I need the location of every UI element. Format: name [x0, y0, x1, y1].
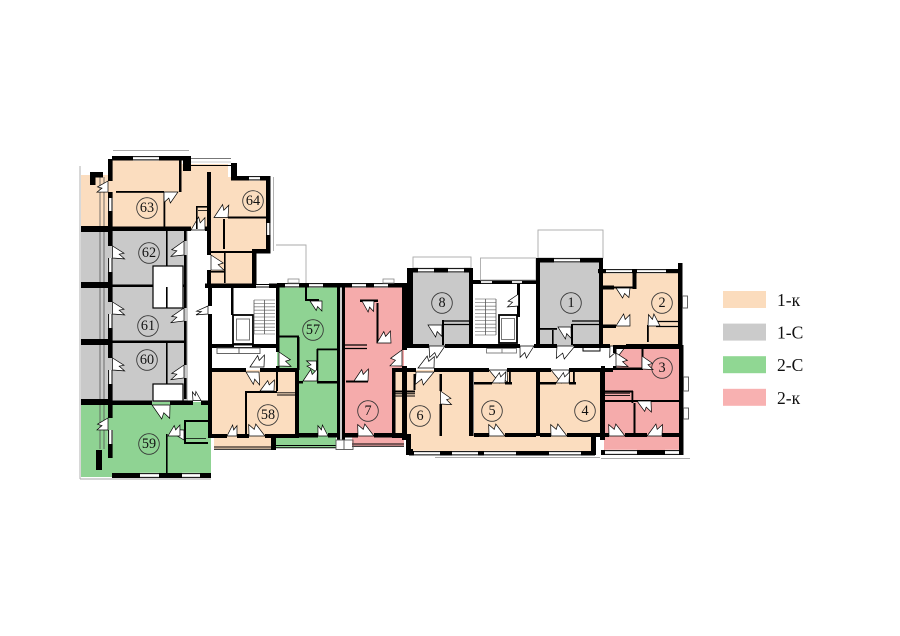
svg-text:2-к: 2-к [777, 388, 801, 408]
svg-text:60: 60 [140, 352, 154, 368]
svg-text:1: 1 [567, 295, 574, 311]
svg-text:57: 57 [306, 322, 320, 338]
svg-text:3: 3 [658, 360, 665, 376]
svg-text:61: 61 [141, 318, 155, 334]
svg-text:1-С: 1-С [777, 323, 803, 343]
svg-text:2-С: 2-С [777, 355, 803, 375]
svg-text:4: 4 [581, 403, 588, 419]
svg-text:64: 64 [246, 193, 260, 209]
svg-text:5: 5 [488, 403, 495, 419]
svg-text:58: 58 [261, 407, 275, 423]
svg-text:7: 7 [364, 403, 371, 419]
svg-text:63: 63 [140, 200, 154, 216]
svg-text:6: 6 [416, 408, 423, 424]
svg-text:8: 8 [438, 295, 445, 311]
svg-text:2: 2 [658, 295, 665, 311]
svg-text:1-к: 1-к [777, 290, 801, 310]
svg-text:62: 62 [142, 245, 156, 261]
svg-text:59: 59 [142, 436, 156, 452]
